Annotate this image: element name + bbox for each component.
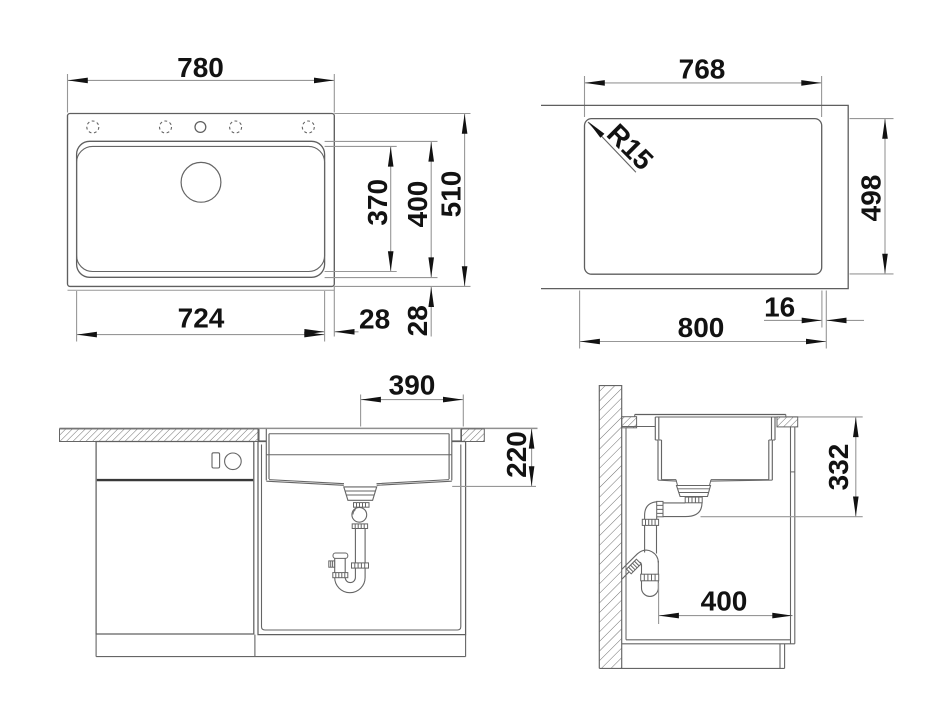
svg-text:390: 390 [389,370,436,401]
svg-text:400: 400 [701,586,748,617]
svg-text:724: 724 [178,303,225,334]
svg-text:400: 400 [402,181,433,228]
svg-text:28: 28 [402,305,433,336]
svg-text:800: 800 [678,312,725,343]
svg-text:510: 510 [436,171,467,218]
svg-text:220: 220 [501,431,532,478]
svg-text:332: 332 [823,444,854,491]
svg-text:498: 498 [856,175,887,222]
svg-text:780: 780 [177,52,224,83]
svg-text:28: 28 [359,304,390,335]
svg-text:370: 370 [362,179,393,226]
svg-text:16: 16 [764,292,795,323]
svg-text:768: 768 [679,54,726,85]
